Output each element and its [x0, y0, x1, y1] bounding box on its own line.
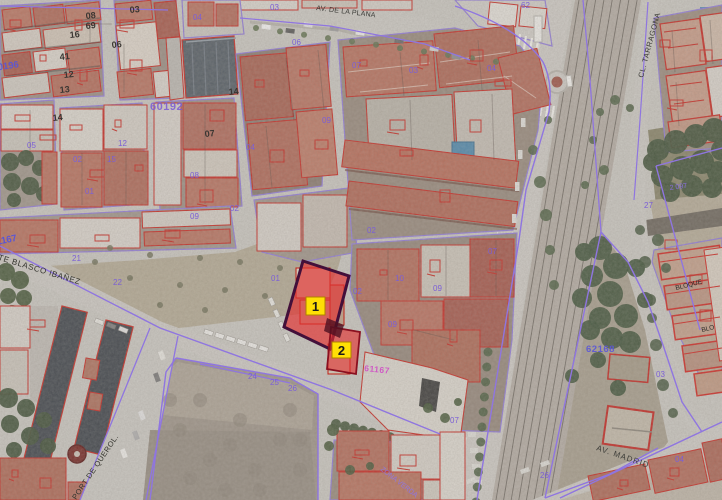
svg-text:62: 62	[521, 1, 530, 10]
svg-text:03: 03	[409, 66, 418, 75]
svg-text:04: 04	[487, 64, 496, 73]
svg-text:07: 07	[488, 247, 497, 256]
svg-text:03: 03	[270, 3, 279, 12]
svg-text:16: 16	[69, 29, 80, 40]
svg-text:03: 03	[656, 370, 665, 379]
svg-text:1: 1	[312, 299, 319, 314]
svg-text:08: 08	[190, 171, 199, 180]
svg-text:21: 21	[72, 254, 81, 263]
svg-text:01: 01	[85, 187, 94, 196]
svg-text:07: 07	[204, 128, 215, 139]
svg-text:26: 26	[540, 471, 549, 480]
svg-text:09: 09	[388, 320, 397, 329]
svg-text:14: 14	[52, 112, 63, 123]
svg-text:60192: 60192	[150, 101, 183, 113]
svg-text:05: 05	[27, 141, 36, 150]
svg-text:25: 25	[270, 378, 279, 387]
svg-text:14: 14	[228, 86, 239, 97]
svg-text:27: 27	[644, 201, 653, 210]
svg-text:13: 13	[59, 84, 70, 95]
svg-text:02: 02	[73, 155, 82, 164]
svg-text:07: 07	[352, 61, 361, 70]
svg-text:09: 09	[322, 116, 331, 125]
svg-text:04: 04	[675, 455, 684, 464]
svg-text:62168: 62168	[586, 344, 615, 355]
svg-text:12: 12	[63, 69, 74, 80]
svg-text:02: 02	[367, 226, 376, 235]
svg-text:12: 12	[118, 139, 127, 148]
svg-text:04: 04	[246, 143, 255, 152]
svg-text:24: 24	[248, 372, 257, 381]
svg-text:04: 04	[193, 13, 202, 22]
svg-text:22: 22	[113, 278, 122, 287]
svg-text:69: 69	[85, 20, 96, 31]
svg-text:01: 01	[271, 274, 280, 283]
svg-text:10: 10	[395, 274, 404, 283]
svg-text:2: 2	[338, 343, 345, 358]
svg-text:09: 09	[190, 212, 199, 221]
svg-text:41: 41	[59, 51, 70, 62]
svg-text:15: 15	[107, 155, 116, 164]
svg-text:02: 02	[353, 287, 362, 296]
svg-text:26: 26	[288, 384, 297, 393]
svg-text:02: 02	[230, 204, 239, 213]
svg-text:06: 06	[292, 38, 301, 47]
svg-text:09: 09	[433, 284, 442, 293]
svg-text:03: 03	[129, 4, 140, 15]
svg-text:07: 07	[450, 416, 459, 425]
svg-text:06: 06	[111, 39, 122, 50]
